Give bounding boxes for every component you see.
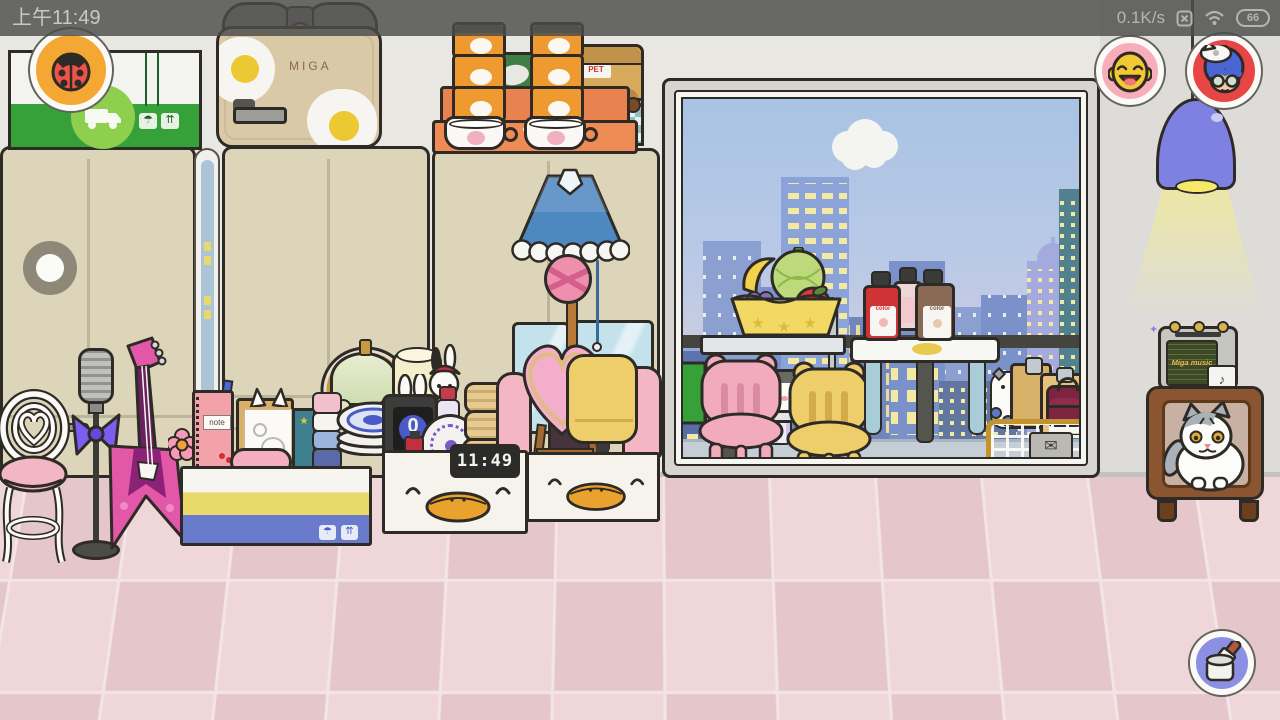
this-way-up-icon: ⇈	[341, 525, 358, 540]
friend-avatar-button[interactable]	[1096, 37, 1164, 105]
mail-tag: ✉	[1029, 432, 1073, 459]
this-way-up-icon: ⇈	[161, 113, 179, 129]
spray-can-brown[interactable]: color	[915, 283, 955, 341]
radio[interactable]: Miga music ♪ ✦	[1158, 326, 1238, 390]
lamp-bulb-glow	[1175, 179, 1219, 194]
cat-chair-pink[interactable]	[698, 347, 784, 459]
notebook-label: note	[203, 415, 231, 430]
svg-text:★: ★	[777, 319, 790, 336]
notebook[interactable]: note	[192, 390, 234, 470]
suitcase-label: MIGA	[289, 59, 359, 77]
no-sim-icon	[1176, 10, 1193, 27]
paint-bucket-icon	[1200, 641, 1244, 685]
duck-face	[543, 471, 649, 515]
miga-suitcase[interactable]: MIGA	[216, 26, 382, 148]
ladybug-icon	[48, 47, 94, 93]
cloud	[832, 119, 898, 170]
svg-text:★: ★	[751, 315, 764, 332]
time-label: 上午11:49	[12, 0, 101, 36]
umbrella-icon: ☂	[319, 525, 336, 540]
decorate-button[interactable]	[1190, 631, 1254, 695]
fruit-bowl[interactable]: ★ ★ ★	[728, 247, 844, 339]
flip-clock[interactable]: 11:49	[450, 444, 520, 478]
network-speed-label: 0.1K/s	[1117, 8, 1165, 28]
teacup[interactable]	[444, 116, 506, 150]
floor-lamp-shade[interactable]	[510, 168, 630, 268]
wire-basket[interactable]: ✉	[986, 419, 1081, 459]
blue-flowers	[990, 407, 1002, 419]
window-view: ★ ★ ★	[681, 97, 1081, 459]
laughing-face-icon	[1108, 48, 1152, 94]
lamp-pull-cord	[596, 260, 599, 344]
umbrella-icon: ☂	[139, 113, 157, 129]
duck-face	[401, 479, 515, 527]
packing-box-striped[interactable]: ☂ ⇈	[180, 466, 372, 546]
duck-box[interactable]	[526, 452, 660, 522]
banana	[744, 259, 774, 293]
clock-display: 11:49	[453, 447, 517, 475]
yarn-ball[interactable]	[544, 254, 592, 304]
cabinet-knob[interactable]	[23, 241, 77, 295]
lamp-highlight	[1211, 113, 1223, 122]
spray-cans[interactable]: color color	[863, 267, 957, 359]
window: ★ ★ ★	[662, 78, 1100, 478]
teacup[interactable]	[524, 116, 586, 150]
wrought-iron-chair[interactable]	[0, 386, 72, 572]
minigame-button[interactable]	[30, 29, 112, 111]
pet-snack-display[interactable]: PET	[432, 22, 668, 154]
game-scene: ★ ★ ★	[0, 0, 1280, 720]
svg-text:★: ★	[803, 315, 816, 332]
player-avatar-button[interactable]	[1187, 34, 1261, 108]
spray-can-red[interactable]: color	[863, 285, 901, 341]
sparkle-icon: ✦	[1149, 323, 1158, 336]
office-chair-seat[interactable]	[566, 354, 638, 444]
suitcase-handle	[233, 107, 287, 124]
status-bar: 上午11:49 0.1K/s 66	[0, 0, 1280, 36]
wifi-icon	[1204, 10, 1225, 26]
cat[interactable]	[1164, 402, 1248, 492]
battery-indicator: 66	[1236, 9, 1270, 27]
blue-haired-character-icon	[1199, 45, 1249, 97]
